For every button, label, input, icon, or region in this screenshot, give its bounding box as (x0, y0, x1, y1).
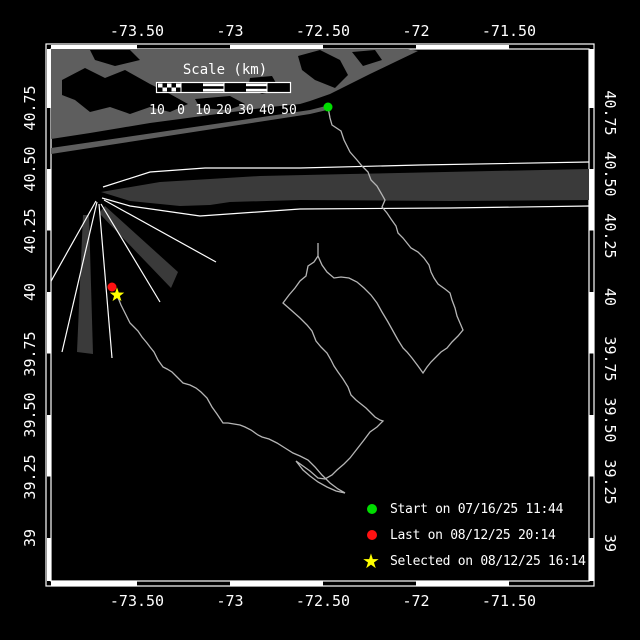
lane-wedge-diagonal (99, 206, 178, 288)
scale-tick-label: 20 (216, 103, 232, 118)
legend-selected-label: Selected on 08/12/25 16:14 (390, 554, 586, 569)
axis-tick-label: 40.75 (602, 90, 618, 135)
axis-tick-label: -73.50 (110, 593, 164, 609)
axis-tick-label: -73 (216, 23, 243, 39)
scale-tick-label: 0 (177, 103, 185, 118)
legend-start-label: Start on 07/16/25 11:44 (390, 502, 563, 517)
axis-tick-label: 40.75 (22, 85, 38, 130)
axis-tick-label: 39.75 (602, 336, 618, 381)
axis-tick-label: -72.50 (296, 23, 350, 39)
axis-tick-label: 40.25 (22, 208, 38, 253)
axis-tick-label: 40.50 (22, 146, 38, 191)
axis-tick-label: 40.25 (602, 213, 618, 258)
scale-tick-label: 30 (238, 103, 254, 118)
scale-tick-label: 10 (149, 103, 165, 118)
axis-tick-label: 39.25 (22, 454, 38, 499)
drifter-track-map: -73.50 -73 -72.50 -72 -71.50 -73.50 -73 … (0, 0, 640, 640)
axis-tick-label: 39 (22, 529, 38, 547)
map-canvas (0, 0, 640, 640)
track-segment (117, 296, 345, 493)
main-lane-separation-zone (101, 169, 589, 206)
axis-tick-label: -72 (402, 593, 429, 609)
axis-tick-label: -73.50 (110, 23, 164, 39)
scale-bar (157, 83, 291, 93)
legend-last-label: Last on 08/12/25 20:14 (390, 528, 556, 543)
lane-wedge-vertical (77, 215, 93, 354)
axis-tick-label: 39.75 (22, 331, 38, 376)
scale-tick-label: 10 (195, 103, 211, 118)
axis-tick-label: 40 (602, 288, 618, 306)
last-dot-icon (367, 530, 377, 540)
axis-tick-label: -71.50 (482, 593, 536, 609)
axis-tick-label: 39 (602, 534, 618, 552)
axis-tick-label: -72 (402, 23, 429, 39)
axis-tick-label: -72.50 (296, 593, 350, 609)
axis-tick-label: -71.50 (482, 23, 536, 39)
axis-tick-label: 39.25 (602, 459, 618, 504)
last-marker (108, 283, 117, 292)
track-segment (318, 107, 463, 373)
scale-bar-title: Scale (km) (183, 62, 267, 78)
start-marker (324, 103, 333, 112)
scale-tick-label: 50 (281, 103, 297, 118)
axis-tick-label: 40.50 (602, 151, 618, 196)
start-dot-icon (367, 504, 377, 514)
axis-tick-label: 39.50 (22, 392, 38, 437)
scale-tick-label: 40 (259, 103, 275, 118)
axis-tick-label: 40 (22, 283, 38, 301)
selected-star-icon: ★ (362, 551, 380, 571)
axis-tick-label: -73 (216, 593, 243, 609)
axis-tick-label: 39.50 (602, 397, 618, 442)
